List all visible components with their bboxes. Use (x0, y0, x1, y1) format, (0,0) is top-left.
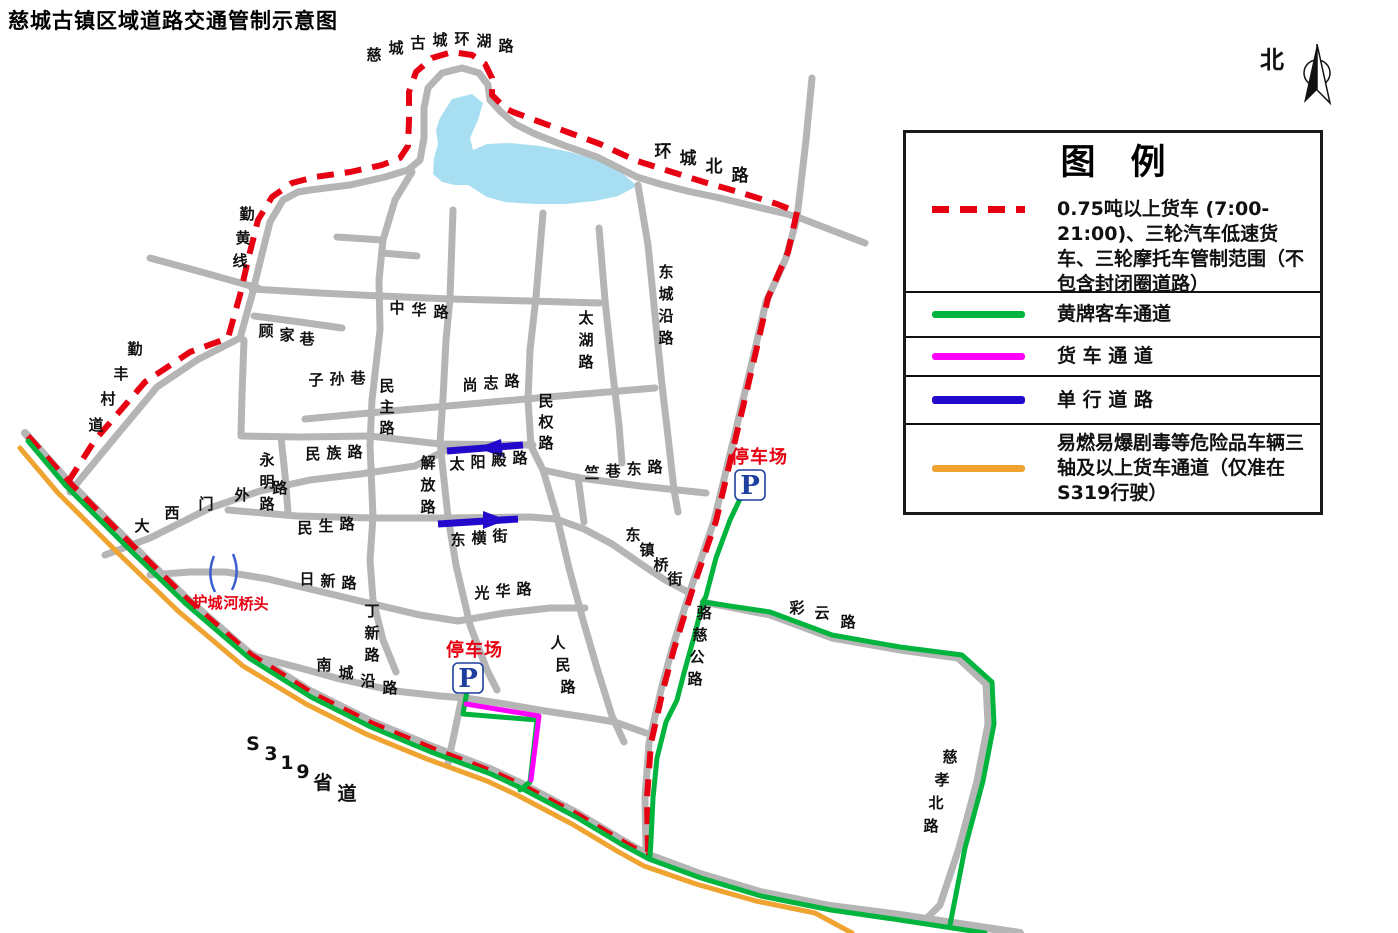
legend: 图 例 0.75吨以上货车 (7:00-21:00)、三轮汽车低速货车、三轮摩托… (903, 130, 1323, 515)
map-label-shangzhi-lu: 尚 (462, 376, 477, 394)
map-label-luoci-gonglu: 骆 (696, 604, 712, 622)
map-label-s319-shengdao: S (246, 733, 260, 755)
legend-label-truck: 货 车 通 道 (1057, 344, 1311, 369)
map-label-parking-north-label: 车 (750, 446, 768, 468)
map-label-luoci-gonglu: 路 (687, 670, 703, 688)
map-label-nancheng-yanlu: 南 (316, 656, 331, 674)
map-label-huancheng-beilu: 城 (680, 149, 697, 169)
map-label-minquan-lu: 权 (537, 413, 554, 431)
road-connector-zhuxiang-dongheng (578, 477, 584, 522)
compass-needle-left-icon (1304, 44, 1317, 103)
map-label-zhonghua-lu: 中 (389, 299, 404, 317)
map-label-parking-south-label: 停 (446, 639, 464, 661)
map-label-cixiao-beilu: 路 (923, 817, 939, 835)
map-label-guanghua-lu: 华 (495, 582, 510, 600)
map-label-zhuxiang-donglu: 路 (647, 458, 663, 476)
map-label-hucheng-bridge-label: 头 (253, 595, 268, 613)
map-label-dongcheng-yanlu: 路 (658, 329, 674, 347)
map-label-yongming-lu: 路 (259, 495, 275, 513)
map-label-huanhu-lu: 路 (498, 37, 514, 55)
legend-label-hazmat: 易燃易爆剧毒等危险品车辆三轴及以上货车通道（仅准在S319行驶） (1057, 431, 1311, 506)
legend-label-restricted: 0.75吨以上货车 (7:00-21:00)、三轮汽车低速货车、三轮摩托车管制范… (1057, 197, 1311, 297)
map-label-huancheng-beilu: 北 (706, 157, 723, 177)
map-label-qinhuang-xian: 线 (232, 252, 247, 270)
map-label-dongcheng-yanlu: 东 (658, 263, 673, 281)
map-label-jiefang-lu: 路 (420, 498, 436, 516)
map-label-huancheng-beilu: 环 (655, 142, 672, 162)
map-label-s319-shengdao: 省 (312, 772, 332, 794)
road-zhuxiang-donglu (543, 470, 706, 493)
map-label-s319-shengdao: 9 (296, 761, 309, 783)
road-zisun-shangzhi-row (305, 388, 655, 419)
map-label-caiyun-lu: 彩 (788, 599, 804, 617)
map-label-cixiao-beilu: 孝 (933, 771, 949, 789)
map-label-nancheng-yanlu: 沿 (360, 672, 375, 690)
map-label-dongheng-jie: 东 (450, 531, 465, 549)
map-label-yongming-lu: 永 (258, 451, 275, 469)
map-label-daximen-wailu: 路 (272, 479, 288, 497)
map-label-daximen-wailu: 门 (198, 495, 213, 513)
map-label-qinfeng-cundao: 村 (100, 390, 115, 408)
map-label-hucheng-bridge-label: 城 (207, 594, 222, 612)
legend-swatch-bus-green (932, 311, 1025, 318)
map-label-dongcheng-yanlu: 沿 (658, 307, 673, 325)
map-label-dingxin-lu: 路 (364, 646, 380, 664)
map-label-dongzhen-qiaojie: 东 (625, 526, 640, 544)
map-label-qinfeng-cundao: 勤 (127, 340, 142, 358)
road-taihu-lu (599, 228, 622, 463)
map-label-taihu-lu: 湖 (578, 331, 593, 349)
legend-label-bus: 黄牌客车通道 (1057, 302, 1311, 327)
map-label-luoci-gonglu: 公 (689, 648, 704, 666)
map-label-s319-shengdao: 3 (264, 743, 277, 765)
map-label-dongheng-jie: 横 (471, 529, 487, 547)
map-label-huanhu-lu: 古 (410, 34, 425, 52)
map-label-jiefang-lu: 放 (419, 476, 436, 494)
map-label-parking-north-label: 场 (769, 447, 787, 468)
map-label-rixin-lu: 日 (299, 570, 314, 588)
map-label-zhuxiang-donglu: 竺 (584, 464, 599, 482)
map-label-dingxin-lu: 新 (364, 624, 379, 642)
road-stub-east (382, 253, 417, 256)
map-label-qinhuang-xian: 黄 (235, 229, 250, 247)
map-label-nancheng-yanlu: 路 (382, 679, 398, 697)
map-label-hucheng-bridge-label: 护 (192, 593, 207, 611)
legend-title: 图 例 (906, 133, 1320, 189)
map-label-huanhu-lu: 城 (432, 31, 447, 49)
map-label-caiyun-lu: 云 (814, 604, 829, 622)
map-label-daximen-wailu: 外 (233, 486, 249, 504)
map-label-minzhu-lu: 主 (379, 398, 394, 416)
map-label-taihu-lu: 路 (578, 353, 594, 371)
map-label-rixin-lu: 新 (320, 572, 335, 590)
map-label-taiyangdian-lu: 阳 (470, 453, 485, 471)
map-label-huanhu-lu: 湖 (476, 32, 491, 50)
map-label-hucheng-bridge-label: 桥 (238, 595, 254, 613)
map-label-zisun-xiang: 子 (308, 371, 323, 389)
map-label-luoci-gonglu: 慈 (692, 626, 707, 644)
compass-needle-right-icon (1317, 44, 1330, 103)
map-label-minsheng-lu: 生 (318, 517, 333, 535)
compass-north-label: 北 (1260, 46, 1284, 74)
map-label-s319-shengdao: 道 (337, 782, 356, 805)
map-label-shangzhi-lu: 路 (504, 372, 520, 390)
map-label-minzu-lu: 民 (305, 445, 320, 463)
map-label-minzu-lu: 路 (347, 443, 363, 461)
map-label-zhonghua-lu: 路 (433, 303, 449, 321)
map-label-zhuxiang-donglu: 巷 (604, 462, 621, 480)
map-label-daximen-wailu: 大 (134, 517, 149, 535)
map-label-zhuxiang-donglu: 东 (626, 460, 641, 478)
map-label-minzhu-lu: 民 (379, 377, 394, 395)
map-label-minsheng-lu: 民 (297, 519, 312, 537)
parking-south-p-icon: P (458, 664, 478, 694)
legend-item-restricted-zone: 0.75吨以上货车 (7:00-21:00)、三轮汽车低速货车、三轮摩托车管制范… (906, 189, 1320, 291)
page-title: 慈城古镇区域道路交通管制示意图 (8, 5, 338, 35)
map-label-taiyangdian-lu: 太 (449, 455, 465, 473)
map-label-parking-north-label: 停 (731, 446, 749, 468)
map-label-huanhu-lu: 环 (454, 30, 469, 48)
map-label-cixiao-beilu: 北 (928, 794, 943, 812)
map-label-zisun-xiang: 孙 (329, 370, 344, 388)
legend-swatch-hazmat-orange (932, 465, 1025, 472)
legend-item-bus-route: 黄牌客车通道 (906, 291, 1320, 336)
map-label-huanhu-lu: 慈 (366, 46, 381, 64)
map-label-dingxin-lu: 丁 (364, 602, 379, 620)
map-label-parking-south-label: 场 (484, 640, 502, 661)
road-daximen-wailu (105, 450, 446, 555)
road-west-corner-link (241, 340, 244, 434)
road-qinhuang-qinfeng-cundao (70, 190, 310, 492)
road-stub-west (337, 237, 382, 240)
map-label-dongcheng-yanlu: 城 (658, 285, 673, 303)
map-label-rixin-lu: 路 (341, 574, 357, 592)
map-label-cixiao-beilu: 慈 (942, 748, 957, 766)
map-label-renmin-lu: 人 (550, 634, 566, 652)
map-label-jiefang-lu: 解 (420, 454, 435, 472)
map-label-huanhu-lu: 城 (388, 39, 403, 57)
map-label-qinhuang-xian: 勤 (239, 205, 254, 223)
map-label-gujia-xiang: 家 (279, 326, 294, 344)
map-label-zisun-xiang: 巷 (349, 369, 366, 387)
legend-item-truck-route: 货 车 通 道 (906, 336, 1320, 375)
map-label-zhonghua-lu: 华 (411, 301, 426, 319)
map-label-gujia-xiang: 顾 (258, 322, 273, 340)
legend-swatch-truck-magenta (932, 353, 1025, 360)
map-label-minsheng-lu: 路 (339, 515, 355, 533)
road-yongming-lu (281, 437, 288, 512)
map-label-nancheng-yanlu: 城 (338, 664, 353, 682)
legend-label-oneway: 单 行 道 路 (1057, 388, 1311, 413)
map-label-renmin-lu: 民 (555, 656, 570, 674)
map-label-minquan-lu: 路 (538, 434, 554, 452)
map-label-taiyangdian-lu: 殿 (490, 451, 507, 469)
parking-north-p-icon: P (740, 471, 760, 501)
map-label-parking-south-label: 车 (465, 639, 483, 661)
map-label-minquan-lu: 民 (538, 392, 553, 410)
map-label-caiyun-lu: 路 (840, 613, 856, 631)
traffic-control-map-page: 慈城古城环湖路环城北路勤黄线勤丰村道顾家巷中华路子孙巷民主路尚志路民权路太湖路东… (0, 0, 1398, 933)
legend-item-oneway: 单 行 道 路 (906, 375, 1320, 423)
map-label-guanghua-lu: 路 (516, 580, 532, 598)
map-label-hucheng-bridge-label: 河 (223, 594, 238, 612)
map-label-huancheng-beilu: 路 (732, 165, 750, 186)
legend-item-hazmat-route: 易燃易爆剧毒等危险品车辆三轴及以上货车通道（仅准在S319行驶） (906, 423, 1320, 512)
map-label-taiyangdian-lu: 路 (512, 449, 528, 467)
map-label-guanghua-lu: 光 (473, 584, 489, 602)
map-label-dongzhen-qiaojie: 镇 (639, 541, 654, 559)
legend-swatch-oneway-blue (932, 396, 1025, 404)
map-label-qinfeng-cundao: 丰 (113, 365, 128, 383)
lake (433, 94, 637, 204)
map-label-s319-shengdao: 1 (280, 752, 293, 774)
map-label-minzhu-lu: 路 (379, 419, 395, 437)
map-label-qinfeng-cundao: 道 (88, 416, 103, 434)
map-label-dongzhen-qiaojie: 街 (666, 570, 682, 588)
map-label-taihu-lu: 太 (578, 309, 594, 327)
map-label-minzu-lu: 族 (326, 444, 342, 462)
map-label-renmin-lu: 路 (560, 678, 576, 696)
map-label-gujia-xiang: 巷 (298, 330, 315, 348)
map-label-daximen-wailu: 西 (164, 504, 179, 522)
map-label-shangzhi-lu: 志 (483, 374, 498, 392)
map-label-dongheng-jie: 街 (491, 527, 507, 545)
legend-swatch-restricted-dash (932, 206, 1025, 213)
